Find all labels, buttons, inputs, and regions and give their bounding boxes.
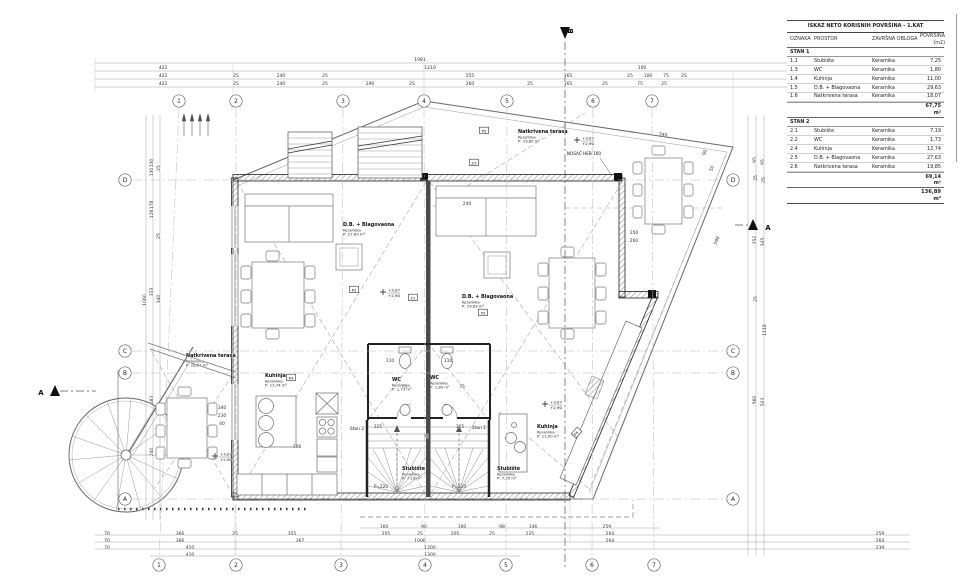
dimension-value: 25 — [761, 177, 767, 183]
toilet-tank — [441, 347, 453, 353]
burner — [319, 419, 325, 425]
table-cell: Kuhinja — [814, 146, 872, 152]
burner — [319, 428, 325, 434]
table-cell: 1,73 — [920, 137, 941, 143]
grid-bubble-label: 6 — [591, 99, 595, 105]
grid-bubble-label: 6 — [590, 563, 594, 569]
grid-bubble-label: 4 — [422, 99, 426, 105]
burner — [328, 428, 334, 434]
dimension-value: 290 — [366, 81, 375, 87]
grid-bubble-label: 5 — [505, 99, 509, 105]
area-row: 1.6Natkrivena terasaKeramika18,07 — [787, 93, 944, 102]
leader-arrows — [182, 114, 210, 136]
table-cell: 18,07 — [920, 93, 941, 99]
dimension-value: 130 — [149, 168, 155, 177]
dimension-value: 25 — [322, 81, 328, 87]
grid-bubble-label: 2 — [234, 563, 238, 569]
table-cell: 7,25 — [920, 58, 941, 64]
washbasin — [400, 405, 410, 416]
table-cell: D.B. + Blagovaona — [814, 85, 872, 91]
table-cell: Natkrivena terasa — [814, 164, 872, 170]
dimension-value: 340 — [156, 295, 162, 304]
position-marker-label: P5 — [482, 129, 487, 134]
dimension-value: 160 — [380, 524, 389, 530]
table-cell: 1.1 — [790, 58, 814, 64]
dimension-value: 25 — [489, 531, 495, 537]
table-cell: Stubište — [814, 58, 872, 64]
west-windows — [230, 206, 240, 440]
position-marker-label: P4 — [289, 376, 294, 381]
position-marker-label: Z3 — [471, 161, 477, 166]
table-cell: D.B. + Blagovaona — [814, 155, 872, 161]
island-stool — [259, 416, 274, 431]
grid-bubble-label: 1 — [177, 99, 181, 105]
dimension-value: 90 — [701, 149, 709, 157]
walk-arrow — [394, 425, 400, 432]
room-area: P: 18,07 m² — [186, 363, 209, 368]
elevation-cross — [380, 289, 386, 295]
room-area: P: 29,63 m² — [462, 304, 485, 309]
dimension-value: 366 — [293, 444, 302, 450]
room-area: P: 7,19 m² — [402, 476, 422, 481]
dining-table-left — [252, 262, 304, 328]
table-cell: 2.5 — [790, 155, 814, 161]
chair — [241, 266, 251, 279]
chair — [561, 247, 574, 257]
dimension-value: 40 — [219, 421, 225, 427]
table-cell: STAN 2 — [790, 119, 814, 125]
section-letter: A — [765, 224, 771, 232]
beam-leader — [600, 158, 612, 176]
dimension-value: 25 — [753, 296, 759, 302]
table-cell: 12,74 — [920, 146, 941, 152]
grid-bubble-label: C — [731, 349, 735, 355]
dimension-value: 183 — [149, 396, 155, 405]
dimension-value: 259 — [876, 531, 885, 537]
chair — [241, 314, 251, 327]
chair — [633, 184, 642, 196]
areas-table-body: STAN 11.1StubišteKeramika7,251.3WCKerami… — [787, 48, 944, 203]
dimension-value: 98 — [499, 524, 505, 530]
dimension-value: 25 — [627, 73, 633, 79]
section-total-row: 69,14 m² — [787, 172, 944, 188]
dimension-value: 128 — [149, 210, 155, 219]
table-cell: Stubište — [814, 128, 872, 134]
entry-stairs — [288, 127, 422, 178]
dimension-value: 178 — [149, 201, 155, 210]
dimension-value: 340 — [218, 405, 227, 411]
table-cell: 69,14 m² — [920, 174, 941, 187]
east-wall — [619, 178, 625, 297]
dimension-value: 340 — [658, 131, 667, 138]
sink-bowl — [506, 433, 517, 444]
dimension-value: 1200 — [424, 545, 436, 551]
table-cell: 11,00 — [920, 76, 941, 82]
dimension-value: 260 — [630, 238, 639, 244]
kitchen-cabinet — [317, 439, 337, 456]
table-cell: 1.5 — [790, 85, 814, 91]
floor-plan-sheet: 11223344556677DDCCBBAA198142212101002484… — [0, 0, 960, 581]
table-cell: 2.1 — [790, 128, 814, 134]
elevation-cross — [574, 137, 580, 143]
dimension-value: 25 — [409, 81, 415, 87]
toilet-bowl — [400, 354, 411, 369]
dimension-value: 259 — [603, 524, 612, 530]
elevation-value: +2,90 — [220, 457, 232, 462]
grid-bubble-label: 1 — [157, 563, 161, 569]
dimension-value: 240 — [149, 448, 155, 457]
dimension-value: 325 — [456, 424, 465, 430]
dimension-value: 1006 — [414, 538, 426, 544]
chair — [178, 459, 191, 468]
grid-bubble-label: 2 — [234, 99, 238, 105]
section-letter: A — [38, 389, 44, 397]
grid-bubble-label: 5 — [504, 563, 508, 569]
dimension-value: 1981 — [414, 57, 426, 63]
party-wall — [426, 181, 431, 498]
grid-bubble-label: 3 — [341, 99, 345, 105]
room-area: P: 27,63 m² — [343, 232, 366, 237]
dimension-value: 225 — [526, 531, 535, 537]
dimension-value: 264 — [606, 531, 615, 537]
dimension-value: 240 — [277, 81, 286, 87]
dining-table-right — [549, 258, 595, 328]
dimension-value: 95 — [752, 157, 758, 163]
chair — [266, 251, 279, 261]
dimension-value: 367 — [296, 538, 305, 544]
grid-bubble-label: 4 — [423, 563, 427, 569]
dimension-value: 25 — [322, 73, 328, 79]
elevation-value: +2,90 — [582, 141, 594, 146]
dimension-value: 422 — [159, 65, 168, 71]
dimension-value: 110 — [444, 358, 453, 364]
position-marker-label: Z1 — [410, 296, 416, 301]
burner — [328, 419, 334, 425]
dimension-value: 25 — [232, 531, 238, 537]
dimension-value: 410 — [186, 552, 195, 558]
position-marker-label: P3 — [481, 311, 486, 316]
room-area: P: 19,85 m² — [518, 139, 541, 144]
grid-bubble-label: 7 — [652, 563, 656, 569]
header-povrsina: POVRŠINA (m2) — [920, 33, 945, 46]
section-triangle-a-right — [748, 219, 758, 230]
table-cell: 7,19 — [920, 128, 941, 134]
annotation-text: P=220 — [452, 484, 466, 489]
dimension-value: 75 — [637, 81, 643, 87]
chair — [156, 403, 165, 415]
elevation-value: +3,07 — [582, 136, 594, 141]
dimension-value: 75 — [663, 73, 669, 79]
chair — [561, 329, 574, 339]
dimension-value: 146 — [529, 524, 538, 530]
elevation-value: +2,90 — [388, 293, 400, 298]
elevation-value: +3,07 — [388, 288, 400, 293]
unit-label: Stan 1 — [472, 425, 486, 431]
area-row: 1.4KuhinjaKeramika11,00 — [787, 75, 944, 84]
dimension-value: 25 — [424, 433, 430, 439]
header-obloga: ZAVRŠNA OBLOGA — [872, 36, 920, 42]
faucet — [512, 423, 517, 428]
annotation-text: NOSAČ HEB 160 — [567, 151, 602, 156]
dimension-value: 100 — [638, 65, 647, 71]
areas-table-header: OZNAKA PROSTOR ZAVRŠNA OBLOGA POVRŠINA (… — [787, 33, 944, 48]
header-prostor: PROSTOR — [814, 36, 872, 42]
area-row: 2.2WCKeramika1,73 — [787, 136, 944, 145]
dimension-value: 239 — [876, 545, 885, 551]
table-cell: 136,89 m² — [920, 189, 941, 203]
room-area: P: 1,80 m² — [430, 385, 450, 390]
washbasin — [442, 405, 452, 416]
elevation-value: +3,07 — [550, 400, 562, 405]
chair — [596, 311, 606, 324]
elevation-value: +3,07 — [220, 452, 232, 457]
grid-bubble-label: A — [123, 497, 127, 503]
table-cell: Keramika — [872, 76, 920, 82]
dimension-value: 422 — [159, 81, 168, 87]
chair — [305, 266, 315, 279]
table-cell: 2.6 — [790, 164, 814, 170]
chair — [305, 314, 315, 327]
chair — [684, 162, 693, 174]
areas-table: ISKAZ NETO KORISNIH POVRŠINA - 1.KAT OZN… — [787, 20, 944, 204]
dimension-value: 590 — [713, 235, 722, 245]
table-cell: Keramika — [872, 67, 920, 73]
chair — [684, 184, 693, 196]
grid-bubble-label: B — [731, 371, 735, 377]
table-cell: Keramika — [872, 137, 920, 143]
grid-bubble-label: 3 — [339, 563, 343, 569]
table-cell: WC — [814, 67, 872, 73]
dimension-value: 352 — [752, 236, 758, 245]
stair-top-right — [358, 127, 422, 178]
dimension-value: 100 — [644, 73, 653, 79]
elevation-value: +2,90 — [550, 405, 562, 410]
column-post — [648, 290, 656, 298]
dimension-value: 205 — [451, 531, 460, 537]
coffee-table-left-inner — [340, 248, 358, 266]
sheet-edge-line — [956, 14, 957, 162]
annotation-text: P=220 — [374, 484, 388, 489]
section-triangle-a-left — [50, 385, 60, 396]
island-stool — [259, 399, 274, 414]
kitchen-cabinet — [317, 457, 337, 472]
table-cell: 1.6 — [790, 93, 814, 99]
dimension-value: 230 — [218, 413, 227, 419]
area-row: 2.1StubišteKeramika7,19 — [787, 127, 944, 136]
chair — [208, 403, 217, 415]
table-cell: Keramika — [872, 128, 920, 134]
room-area: P: 12,74 m² — [265, 383, 288, 388]
dimension-value: 25 — [753, 175, 759, 181]
toilet-tank — [399, 347, 411, 353]
dimension-value: 165 — [564, 81, 573, 87]
grid-bubble-label: D — [123, 178, 128, 184]
dimension-value: 240 — [277, 73, 286, 79]
table-cell: WC — [814, 137, 872, 143]
grid-bubble-label: 7 — [650, 99, 654, 105]
dimension-value: 25 — [233, 81, 239, 87]
table-cell: 1.4 — [790, 76, 814, 82]
chair — [538, 263, 548, 276]
table-cell: 2.2 — [790, 137, 814, 143]
chair — [596, 287, 606, 300]
table-cell: Kuhinja — [814, 76, 872, 82]
unit-label: Stan 2 — [350, 426, 364, 432]
dimension-value: 25 — [661, 81, 667, 87]
table-cell: 67,75 m² — [920, 103, 941, 116]
chair — [178, 387, 191, 396]
table-cell: 1,80 — [920, 67, 941, 73]
table-cell: 19,85 — [920, 164, 941, 170]
dimension-value: 355 — [288, 531, 297, 537]
table-cell: Natkrivena terasa — [814, 93, 872, 99]
dimension-value: 1118 — [762, 324, 768, 336]
dimension-value: 205 — [382, 531, 391, 537]
dimension-value: 90 — [421, 524, 427, 530]
area-row: 2.4KuhinjaKeramika12,74 — [787, 145, 944, 154]
dimension-value: 25 — [527, 81, 533, 87]
dimension-value: 350 — [630, 230, 639, 236]
dimension-value: 25 — [233, 73, 239, 79]
table-cell: Keramika — [872, 164, 920, 170]
chair — [652, 146, 665, 155]
room-area: P: 11,00 m² — [537, 434, 560, 439]
coffee-table-right-inner — [488, 256, 506, 274]
table-cell: 2.4 — [790, 146, 814, 152]
table-cell: 27,63 — [920, 155, 941, 161]
section-total-row: 67,75 m² — [787, 102, 944, 118]
dimension-value: 110 — [386, 358, 395, 364]
chair — [633, 206, 642, 218]
chair — [538, 311, 548, 324]
dimension-value: 366 — [176, 531, 185, 537]
dimension-value: 345 — [760, 238, 766, 247]
areas-table-title: ISKAZ NETO KORISNIH POVRŠINA - 1.KAT — [787, 21, 944, 33]
dimension-value: 560 — [752, 396, 758, 405]
table-cell: Keramika — [872, 85, 920, 91]
dimension-value: 366 — [176, 538, 185, 544]
area-row: 2.5D.B. + BlagovaonaKeramika27,63 — [787, 154, 944, 163]
chair — [596, 263, 606, 276]
dimension-value: 1060 — [142, 294, 148, 306]
section-header-row: STAN 1 — [787, 48, 944, 57]
table-cell: STAN 1 — [790, 49, 814, 55]
table-cell: 29,63 — [920, 85, 941, 91]
chair — [305, 290, 315, 303]
header-oznaka: OZNAKA — [790, 36, 814, 42]
grid-line-vertical — [159, 108, 179, 558]
dimension-value: 165 — [564, 73, 573, 79]
dimension-value: 160 — [458, 524, 467, 530]
dimension-value: 130 — [149, 159, 155, 168]
dimension-value: 240 — [463, 201, 472, 207]
dimension-value: 1300 — [424, 552, 436, 558]
area-row: 2.6Natkrivena terasaKeramika19,85 — [787, 163, 944, 172]
chair — [208, 425, 217, 437]
bottom-dim-lines — [95, 528, 910, 556]
island-stool — [259, 433, 274, 448]
area-row: 1.1StubišteKeramika7,25 — [787, 57, 944, 66]
dimension-value: 422 — [159, 73, 168, 79]
dimension-value: 410 — [186, 545, 195, 551]
dimension-value: 25 — [156, 165, 162, 171]
chair — [241, 290, 251, 303]
dimension-value: 95 — [760, 159, 766, 165]
table-cell: Keramika — [872, 155, 920, 161]
dimension-value: 70 — [104, 538, 110, 544]
dimension-value: 325 — [374, 424, 383, 430]
elevation-cross — [542, 401, 548, 407]
dimension-value: 50 — [708, 165, 716, 173]
chair — [684, 206, 693, 218]
dimension-value: 25 — [681, 73, 687, 79]
dimension-value: 75 — [459, 384, 465, 390]
chair — [633, 162, 642, 174]
room-area: P: 1,73 m² — [392, 387, 412, 392]
stair-top-left — [288, 132, 332, 178]
chair — [652, 225, 665, 234]
section-letter: B — [567, 28, 575, 33]
dimension-value: 264 — [606, 538, 615, 544]
dimension-value: 70 — [104, 531, 110, 537]
section-header-row: STAN 2 — [787, 118, 944, 127]
dimension-value: 1210 — [424, 65, 436, 71]
dimension-value: 70 — [104, 545, 110, 551]
grid-bubble-label: D — [731, 178, 736, 184]
room-area: P: 7,25 m² — [497, 476, 517, 481]
dimension-value: 25 — [602, 81, 608, 87]
chair — [156, 425, 165, 437]
chair — [538, 287, 548, 300]
area-row: 1.5D.B. + BlagovaonaKeramika29,63 — [787, 84, 944, 93]
terrace-table-right — [645, 158, 682, 224]
dimension-value: 555 — [466, 73, 475, 79]
table-cell: Keramika — [872, 93, 920, 99]
area-row: 1.3WCKeramika1,80 — [787, 66, 944, 75]
chair — [208, 447, 217, 459]
dimension-value: 25 — [156, 233, 162, 239]
dimension-value: 503 — [760, 398, 766, 407]
grid-bubble-label: A — [731, 497, 735, 503]
table-cell: Keramika — [872, 146, 920, 152]
grand-total-row: 136,89 m² — [787, 188, 944, 203]
table-cell: Keramika — [872, 58, 920, 64]
position-marker-label: P2 — [352, 288, 357, 293]
terrace-table-left — [167, 398, 207, 458]
dimension-value: 260 — [466, 81, 475, 87]
grid-bubble-label: B — [123, 371, 127, 377]
grid-bubble-label: C — [123, 349, 127, 355]
dimension-value: 264 — [876, 538, 885, 544]
dimension-value: 25 — [417, 531, 423, 537]
table-cell: 1.3 — [790, 67, 814, 73]
dimension-value: 353 — [149, 288, 155, 297]
sink-bowl — [515, 442, 526, 453]
chair — [266, 329, 279, 339]
